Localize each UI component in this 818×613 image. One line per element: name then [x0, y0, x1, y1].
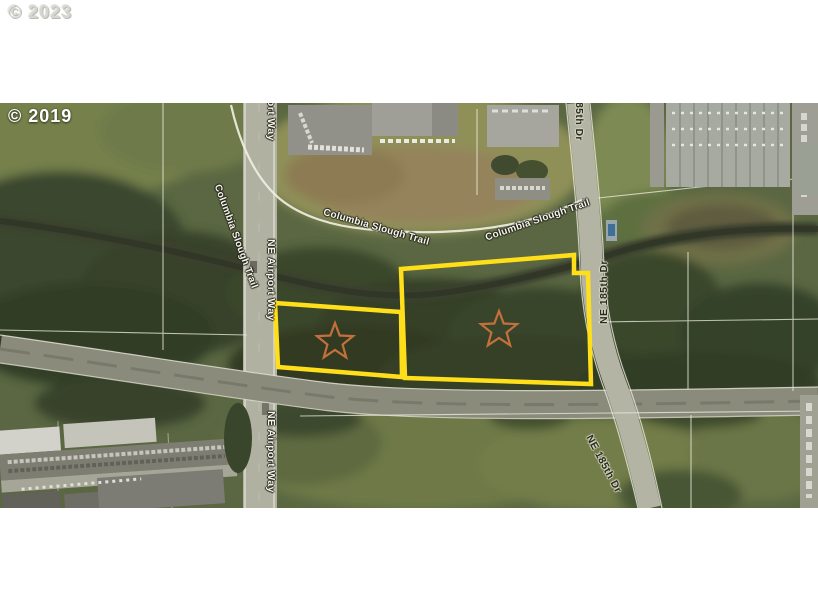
aerial-imagery — [0, 103, 818, 508]
road-label-ne-185th-dr-top: NE 185th Dr — [573, 103, 585, 141]
copyright-2023-watermark: © 2023 — [8, 2, 72, 23]
road-label-ne-185th-dr-mid: NE 185th Dr — [598, 260, 610, 324]
listing-photo-page: © 2023 — [0, 0, 818, 613]
copyright-2019-watermark: © 2019 — [8, 106, 72, 127]
road-label-ne-airport-way-bottom: NE Airport Way — [265, 411, 277, 493]
satellite-map-image: © 2019 NE Airport Way NE Airport Way NE … — [0, 103, 818, 508]
road-label-ne-airport-way-top: NE Airport Way — [265, 103, 277, 141]
road-label-ne-airport-way-mid: NE Airport Way — [265, 239, 277, 321]
